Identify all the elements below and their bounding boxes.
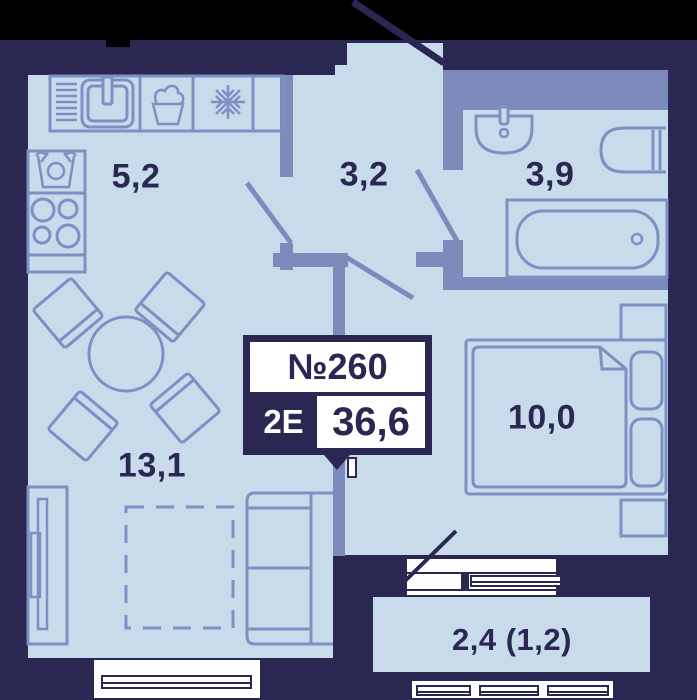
double-bed (466, 340, 666, 494)
wardrobe (28, 487, 67, 644)
chair (150, 373, 220, 443)
nightstand (621, 500, 666, 536)
balcony-door-swing (405, 531, 456, 581)
bathroom-door-swing (417, 170, 457, 241)
nightstand (621, 305, 666, 340)
decor-basket-icon (153, 86, 183, 124)
apartment-type: 2Е (250, 396, 317, 448)
dashed-layout-area (126, 507, 233, 628)
sofa (247, 493, 333, 644)
dining-table (89, 317, 163, 391)
washing-machine-icon (36, 153, 76, 188)
stove-icon (28, 151, 85, 272)
entrance-door-swing (353, 2, 444, 63)
pillow (631, 352, 662, 409)
drainer-icon (56, 84, 77, 120)
pillow (631, 419, 662, 486)
sink-icon (82, 77, 133, 127)
apartment-number: №260 (250, 342, 425, 392)
bedroom-door-swing (346, 257, 413, 298)
fridge-snowflake-icon (211, 85, 245, 119)
kitchen-door-swing (247, 183, 291, 243)
floor-plan: №260 2Е 36,6 5,2 3,2 3,9 13,1 10,0 2,4 (… (0, 0, 697, 700)
apartment-badge[interactable]: №260 2Е 36,6 (243, 335, 432, 455)
apartment-total-area: 36,6 (317, 396, 425, 448)
washbasin-icon (476, 107, 532, 153)
chair (135, 272, 205, 342)
bathtub-icon (507, 200, 667, 277)
chair (48, 391, 118, 461)
toilet-icon (601, 128, 666, 172)
